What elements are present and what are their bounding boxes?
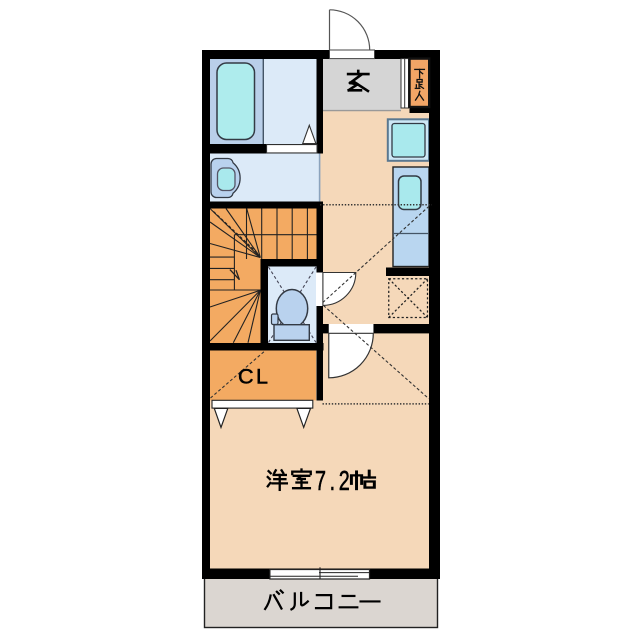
svg-text:7.2: 7.2 [315,466,353,497]
svg-text:CL: CL [238,364,270,388]
